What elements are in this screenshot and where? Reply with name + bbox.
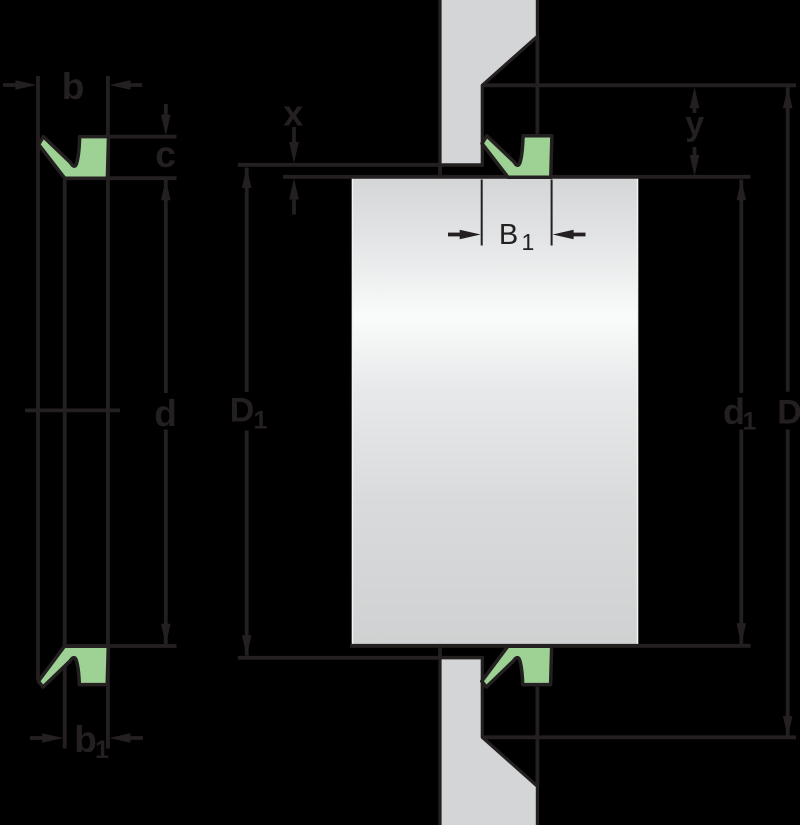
svg-text:y: y	[685, 105, 704, 143]
svg-text:b: b	[62, 66, 85, 107]
svg-text:B: B	[499, 219, 518, 251]
svg-text:d: d	[154, 393, 177, 434]
svg-text:b: b	[74, 719, 97, 760]
svg-text:D: D	[777, 393, 800, 431]
svg-text:D: D	[230, 392, 255, 430]
svg-text:1: 1	[522, 229, 535, 255]
svg-text:x: x	[283, 92, 303, 133]
svg-text:1: 1	[254, 407, 268, 435]
svg-text:c: c	[155, 134, 176, 175]
svg-text:1: 1	[95, 736, 109, 764]
svg-text:1: 1	[743, 408, 757, 436]
